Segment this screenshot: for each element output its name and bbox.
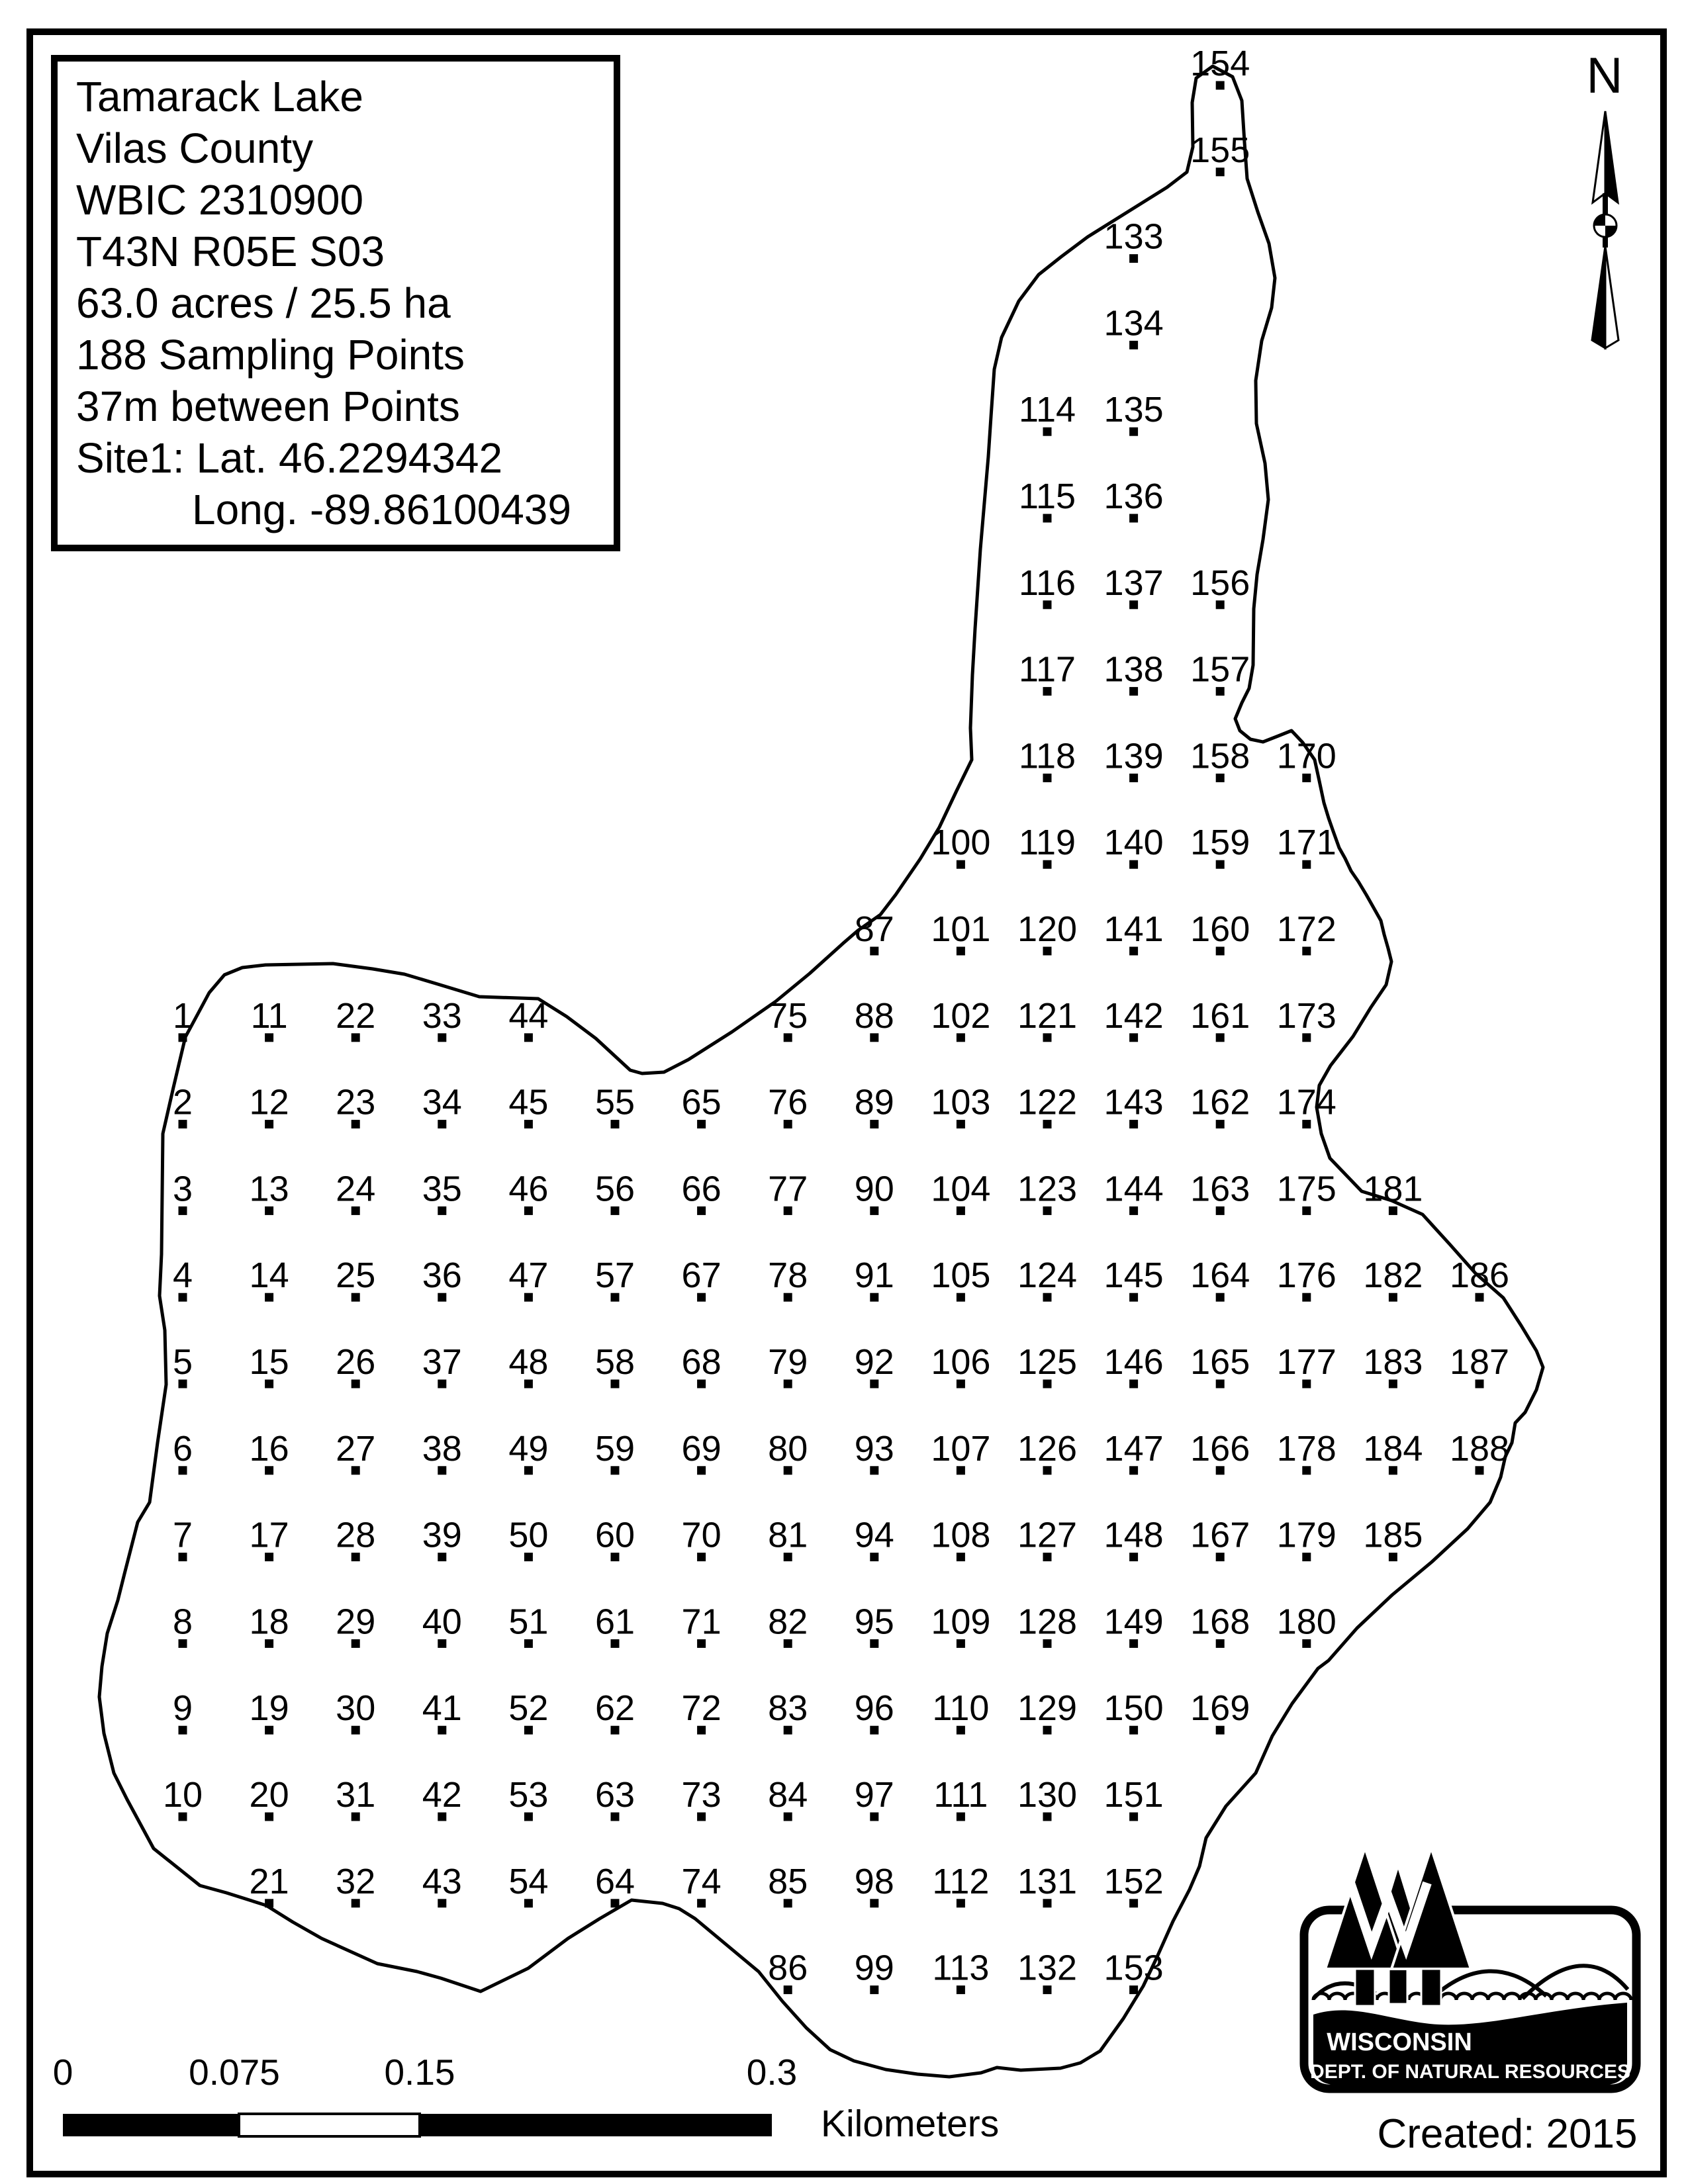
sampling-point-dot	[524, 1899, 533, 1907]
sampling-point-label: 168	[1190, 1602, 1250, 1641]
sampling-point-dot	[265, 1899, 273, 1907]
sampling-point-label: 108	[931, 1516, 990, 1555]
sampling-point-dot	[524, 1033, 533, 1042]
scale-unit-label: Kilometers	[821, 2103, 999, 2145]
sampling-point-label: 25	[336, 1255, 375, 1295]
sampling-point-label: 166	[1190, 1429, 1250, 1469]
sampling-point-label: 46	[508, 1169, 548, 1208]
sampling-point-dot	[957, 1726, 965, 1735]
sampling-point-label: 131	[1017, 1862, 1077, 1901]
sampling-point-label: 121	[1017, 996, 1077, 1036]
sampling-point-dot	[1129, 1639, 1138, 1648]
sampling-point-dot	[524, 1293, 533, 1302]
sampling-point-dot	[438, 1293, 446, 1302]
sampling-point-dot	[352, 1899, 360, 1907]
sampling-point-label: 90	[855, 1169, 894, 1208]
sampling-point-dot	[957, 1033, 965, 1042]
logo-dept-label: DEPT. OF NATURAL RESOURCES	[1310, 2061, 1630, 2083]
sampling-point-dot	[870, 947, 878, 956]
sampling-point-dot	[611, 1293, 620, 1302]
sampling-point-dot	[179, 1293, 187, 1302]
sampling-point-dot	[697, 1293, 706, 1302]
sampling-point-label: 77	[768, 1169, 808, 1208]
sampling-point-dot	[265, 1206, 273, 1215]
scale-tick-label: 0.075	[189, 2052, 280, 2093]
sampling-point-label: 139	[1104, 736, 1164, 776]
sampling-point-dot	[870, 1639, 878, 1648]
sampling-point-label: 40	[422, 1602, 462, 1641]
sampling-point-dot	[1302, 947, 1311, 956]
sampling-point-label: 155	[1190, 130, 1250, 170]
sampling-point-label: 111	[933, 1775, 988, 1815]
sampling-point-label: 169	[1190, 1688, 1250, 1728]
sampling-point-dot	[1216, 947, 1225, 956]
sampling-point-label: 75	[768, 996, 808, 1036]
sampling-point-label: 92	[855, 1342, 894, 1382]
sampling-point-label: 135	[1104, 390, 1164, 430]
sampling-point-label: 178	[1277, 1429, 1336, 1469]
sampling-point-dot	[1043, 1206, 1052, 1215]
sampling-point-label: 37	[422, 1342, 462, 1382]
title-line: Vilas County	[76, 122, 614, 174]
sampling-point-dot	[438, 1813, 446, 1821]
sampling-point-label: 61	[595, 1602, 635, 1641]
sampling-point-label: 176	[1277, 1255, 1336, 1295]
sampling-point-label: 12	[250, 1083, 289, 1122]
sampling-point-label: 171	[1277, 823, 1336, 862]
sampling-point-dot	[1043, 1985, 1052, 1994]
sampling-point-label: 157	[1190, 650, 1250, 690]
sampling-point-dot	[697, 1813, 706, 1821]
sampling-point-dot	[870, 1726, 878, 1735]
sampling-point-dot	[1302, 1466, 1311, 1475]
sampling-point-label: 1	[173, 996, 193, 1036]
sampling-point-label: 54	[508, 1862, 548, 1901]
sampling-point-label: 124	[1017, 1255, 1077, 1295]
dnr-logo: WISCONSIN DEPT. OF NATURAL RESOURCES	[1304, 1848, 1636, 2089]
sampling-point-dot	[265, 1553, 273, 1561]
title-box: Tamarack LakeVilas CountyWBIC 2310900T43…	[51, 55, 620, 551]
scale-bar-segment	[420, 2114, 772, 2136]
title-line: Tamarack Lake	[76, 71, 614, 122]
sampling-point-dot	[1216, 1033, 1225, 1042]
sampling-point-label: 156	[1190, 563, 1250, 603]
sampling-point-dot	[1216, 1206, 1225, 1215]
sampling-point-label: 93	[855, 1429, 894, 1469]
sampling-point-dot	[438, 1899, 446, 1907]
sampling-point-label: 181	[1363, 1169, 1423, 1208]
sampling-point-dot	[265, 1813, 273, 1821]
sampling-point-dot	[438, 1466, 446, 1475]
sampling-point-label: 76	[768, 1083, 808, 1122]
sampling-point-label: 149	[1104, 1602, 1164, 1641]
sampling-point-label: 20	[250, 1775, 289, 1815]
sampling-point-label: 114	[1019, 390, 1076, 430]
sampling-point-label: 24	[336, 1169, 375, 1208]
sampling-point-label: 59	[595, 1429, 635, 1469]
sampling-point-label: 74	[682, 1862, 722, 1901]
sampling-point-label: 137	[1104, 563, 1164, 603]
sampling-point-dot	[784, 1726, 792, 1735]
sampling-point-label: 99	[855, 1948, 894, 1988]
sampling-point-dot	[179, 1553, 187, 1561]
sampling-point-label: 43	[422, 1862, 462, 1901]
sampling-point-label: 3	[173, 1169, 193, 1208]
sampling-point-dot	[352, 1639, 360, 1648]
sampling-point-dot	[1043, 1033, 1052, 1042]
sampling-point-label: 33	[422, 996, 462, 1036]
sampling-point-dot	[179, 1380, 187, 1388]
sampling-point-dot	[1216, 1380, 1225, 1388]
sampling-point-dot	[1129, 1813, 1138, 1821]
sampling-point-dot	[957, 1120, 965, 1128]
sampling-point-label: 125	[1017, 1342, 1077, 1382]
sampling-point-dot	[611, 1466, 620, 1475]
sampling-point-dot	[1216, 1466, 1225, 1475]
map-page: 1234567891011121314151617181920212223242…	[0, 0, 1688, 2184]
sampling-point-dot	[265, 1466, 273, 1475]
sampling-point-label: 102	[931, 996, 990, 1036]
sampling-point-dot	[611, 1899, 620, 1907]
north-arrow-icon	[1592, 111, 1618, 348]
sampling-point-dot	[697, 1553, 706, 1561]
sampling-point-dot	[697, 1206, 706, 1215]
sampling-point-dot	[957, 1985, 965, 1994]
sampling-point-dot	[697, 1639, 706, 1648]
sampling-point-dot	[1129, 514, 1138, 523]
sampling-point-label: 163	[1190, 1169, 1250, 1208]
sampling-point-dot	[784, 1553, 792, 1561]
sampling-point-label: 48	[508, 1342, 548, 1382]
sampling-point-label: 129	[1017, 1688, 1077, 1728]
sampling-point-label: 96	[855, 1688, 894, 1728]
sampling-point-dot	[438, 1033, 446, 1042]
sampling-point-dot	[957, 1380, 965, 1388]
sampling-point-label: 150	[1104, 1688, 1164, 1728]
sampling-point-label: 113	[932, 1948, 989, 1988]
sampling-point-dot	[1129, 1206, 1138, 1215]
sampling-point-dot	[265, 1639, 273, 1648]
sampling-point-dot	[1216, 687, 1225, 696]
sampling-point-dot	[1129, 428, 1138, 436]
sampling-point-dot	[1043, 860, 1052, 869]
sampling-point-label: 31	[336, 1775, 375, 1815]
sampling-point-dot	[611, 1553, 620, 1561]
sampling-point-dot	[1129, 1726, 1138, 1735]
sampling-point-dot	[438, 1639, 446, 1648]
sampling-point-dot	[1216, 167, 1225, 176]
sampling-point-label: 106	[931, 1342, 990, 1382]
sampling-point-label: 170	[1277, 736, 1336, 776]
sampling-point-label: 160	[1190, 909, 1250, 949]
sampling-point-dot	[784, 1120, 792, 1128]
sampling-point-label: 180	[1277, 1602, 1336, 1641]
sampling-point-label: 151	[1104, 1775, 1164, 1815]
sampling-point-dot	[1389, 1466, 1397, 1475]
sampling-point-label: 28	[336, 1516, 375, 1555]
sampling-point-label: 145	[1104, 1255, 1164, 1295]
sampling-point-dot	[265, 1293, 273, 1302]
scale-tick-label: 0.15	[384, 2052, 455, 2093]
sampling-point-label: 154	[1190, 44, 1250, 83]
sampling-point-label: 88	[855, 996, 894, 1036]
sampling-point-dot	[1043, 1466, 1052, 1475]
sampling-point-dot	[1129, 1380, 1138, 1388]
sampling-point-label: 186	[1450, 1255, 1509, 1295]
sampling-point-dot	[957, 1293, 965, 1302]
sampling-point-dot	[352, 1206, 360, 1215]
sampling-point-label: 119	[1019, 823, 1076, 862]
sampling-point-label: 80	[768, 1429, 808, 1469]
title-line: Long. -89.86100439	[76, 484, 614, 535]
sampling-point-label: 39	[422, 1516, 462, 1555]
sampling-point-label: 162	[1190, 1083, 1250, 1122]
sampling-point-dot	[611, 1120, 620, 1128]
sampling-point-dot	[524, 1726, 533, 1735]
sampling-point-label: 158	[1190, 736, 1250, 776]
sampling-point-dot	[352, 1120, 360, 1128]
sampling-point-dot	[352, 1466, 360, 1475]
sampling-point-label: 47	[508, 1255, 548, 1295]
sampling-point-dot	[1216, 1726, 1225, 1735]
sampling-point-label: 182	[1363, 1255, 1423, 1295]
sampling-point-label: 4	[173, 1255, 193, 1295]
sampling-point-label: 83	[768, 1688, 808, 1728]
sampling-point-dot	[524, 1466, 533, 1475]
sampling-point-dot	[1389, 1206, 1397, 1215]
sampling-point-label: 65	[682, 1083, 722, 1122]
sampling-point-dot	[784, 1380, 792, 1388]
title-line: T43N R05E S03	[76, 226, 614, 277]
sampling-point-label: 67	[682, 1255, 722, 1295]
sampling-point-label: 49	[508, 1429, 548, 1469]
sampling-point-dot	[1216, 1639, 1225, 1648]
sampling-point-dot	[870, 1033, 878, 1042]
sampling-point-dot	[265, 1380, 273, 1388]
sampling-point-label: 56	[595, 1169, 635, 1208]
title-line: WBIC 2310900	[76, 174, 614, 226]
sampling-point-label: 109	[931, 1602, 990, 1641]
sampling-point-label: 62	[595, 1688, 635, 1728]
created-text: Created: 2015	[1378, 2111, 1638, 2157]
sampling-point-dot	[352, 1380, 360, 1388]
sampling-point-label: 41	[422, 1688, 462, 1728]
sampling-point-dot	[697, 1120, 706, 1128]
sampling-point-label: 70	[682, 1516, 722, 1555]
sampling-point-label: 52	[508, 1688, 548, 1728]
sampling-point-dot	[784, 1466, 792, 1475]
sampling-point-label: 115	[1019, 477, 1076, 516]
sampling-point-dot	[1216, 600, 1225, 609]
sampling-point-label: 64	[595, 1862, 635, 1901]
sampling-point-dot	[957, 947, 965, 956]
sampling-point-label: 95	[855, 1602, 894, 1641]
sampling-point-dot	[611, 1726, 620, 1735]
sampling-point-label: 143	[1104, 1083, 1164, 1122]
sampling-point-dot	[870, 1899, 878, 1907]
sampling-point-dot	[1129, 1293, 1138, 1302]
sampling-point-label: 148	[1104, 1516, 1164, 1555]
sampling-point-label: 179	[1277, 1516, 1336, 1555]
sampling-point-label: 105	[931, 1255, 990, 1295]
sampling-point-dot	[1043, 1899, 1052, 1907]
sampling-point-dot	[870, 1293, 878, 1302]
title-line: Site1: Lat. 46.2294342	[76, 432, 614, 484]
sampling-point-dot	[1043, 1639, 1052, 1648]
sampling-point-dot	[1043, 1813, 1052, 1821]
sampling-point-label: 89	[855, 1083, 894, 1122]
sampling-point-label: 172	[1277, 909, 1336, 949]
scale-tick-label: 0.3	[747, 2052, 797, 2093]
sampling-point-dot	[1302, 1120, 1311, 1128]
sampling-point-dot	[611, 1813, 620, 1821]
sampling-point-label: 165	[1190, 1342, 1250, 1382]
sampling-point-label: 21	[250, 1862, 289, 1901]
sampling-point-label: 127	[1017, 1516, 1077, 1555]
sampling-point-dot	[1043, 1293, 1052, 1302]
sampling-point-label: 22	[336, 996, 375, 1036]
sampling-point-label: 8	[173, 1602, 193, 1641]
sampling-point-dot	[1129, 1033, 1138, 1042]
sampling-point-label: 87	[855, 909, 894, 949]
sampling-point-label: 45	[508, 1083, 548, 1122]
sampling-point-label: 103	[931, 1083, 990, 1122]
sampling-point-label: 152	[1104, 1862, 1164, 1901]
sampling-point-label: 15	[250, 1342, 289, 1382]
sampling-point-dot	[1043, 1380, 1052, 1388]
sampling-point-label: 30	[336, 1688, 375, 1728]
sampling-point-dot	[784, 1813, 792, 1821]
sampling-point-label: 128	[1017, 1602, 1077, 1641]
sampling-point-label: 16	[250, 1429, 289, 1469]
sampling-point-dot	[957, 860, 965, 869]
sampling-point-label: 18	[250, 1602, 289, 1641]
sampling-point-label: 173	[1277, 996, 1336, 1036]
sampling-point-dot	[352, 1293, 360, 1302]
sampling-point-label: 141	[1104, 909, 1164, 949]
sampling-point-label: 84	[768, 1775, 808, 1815]
sampling-point-dot	[1043, 687, 1052, 696]
sampling-point-dot	[870, 1985, 878, 1994]
sampling-point-dot	[352, 1813, 360, 1821]
sampling-point-dot	[265, 1726, 273, 1735]
sampling-point-label: 147	[1104, 1429, 1164, 1469]
sampling-point-dot	[1389, 1553, 1397, 1561]
sampling-point-dot	[179, 1466, 187, 1475]
sampling-point-label: 164	[1190, 1255, 1250, 1295]
sampling-point-label: 177	[1277, 1342, 1336, 1382]
sampling-point-label: 118	[1019, 736, 1076, 776]
sampling-point-dot	[784, 1206, 792, 1215]
sampling-point-dot	[1043, 1726, 1052, 1735]
sampling-point-dot	[1129, 600, 1138, 609]
sampling-point-label: 85	[768, 1862, 808, 1901]
sampling-point-label: 69	[682, 1429, 722, 1469]
sampling-point-label: 32	[336, 1862, 375, 1901]
sampling-point-label: 133	[1104, 217, 1164, 257]
sampling-point-dot	[1043, 600, 1052, 609]
sampling-point-label: 29	[336, 1602, 375, 1641]
sampling-point-dot	[179, 1120, 187, 1128]
sampling-point-label: 122	[1017, 1083, 1077, 1122]
sampling-point-dot	[697, 1380, 706, 1388]
sampling-point-label: 72	[682, 1688, 722, 1728]
sampling-point-dot	[1302, 1639, 1311, 1648]
sampling-point-dot	[1216, 1293, 1225, 1302]
sampling-point-label: 44	[508, 996, 548, 1036]
sampling-point-dot	[697, 1899, 706, 1907]
sampling-point-dot	[352, 1553, 360, 1561]
sampling-point-label: 184	[1363, 1429, 1423, 1469]
sampling-point-dot	[265, 1033, 273, 1042]
sampling-point-label: 107	[931, 1429, 990, 1469]
sampling-point-label: 17	[250, 1516, 289, 1555]
sampling-point-dot	[1129, 774, 1138, 782]
sampling-point-dot	[524, 1206, 533, 1215]
sampling-point-dot	[179, 1033, 187, 1042]
sampling-point-label: 104	[931, 1169, 990, 1208]
sampling-point-dot	[1302, 1033, 1311, 1042]
sampling-point-dot	[1216, 1120, 1225, 1128]
sampling-point-label: 26	[336, 1342, 375, 1382]
scale-tick-label: 0	[53, 2052, 73, 2093]
sampling-point-label: 132	[1017, 1948, 1077, 1988]
sampling-point-dot	[438, 1726, 446, 1735]
sampling-point-label: 34	[422, 1083, 462, 1122]
scale-bar-ticks: 00.0750.150.3	[53, 2052, 798, 2093]
sampling-point-dot	[179, 1726, 187, 1735]
sampling-point-label: 11	[251, 996, 288, 1036]
sampling-point-dot	[1129, 860, 1138, 869]
sampling-point-label: 183	[1363, 1342, 1423, 1382]
sampling-point-dot	[179, 1206, 187, 1215]
sampling-point-label: 112	[932, 1862, 989, 1901]
sampling-point-dot	[1043, 428, 1052, 436]
sampling-point-label: 42	[422, 1775, 462, 1815]
sampling-point-dot	[179, 1813, 187, 1821]
sampling-point-dot	[784, 1639, 792, 1648]
title-line: 37m between Points	[76, 381, 614, 432]
sampling-point-label: 82	[768, 1602, 808, 1641]
sampling-point-dot	[957, 1813, 965, 1821]
sampling-point-dot	[697, 1726, 706, 1735]
sampling-point-dot	[1129, 1120, 1138, 1128]
sampling-point-label: 23	[336, 1083, 375, 1122]
sampling-point-dot	[1216, 774, 1225, 782]
sampling-point-label: 19	[250, 1688, 289, 1728]
sampling-point-label: 9	[173, 1688, 193, 1728]
sampling-point-dot	[1302, 774, 1311, 782]
sampling-point-dot	[524, 1813, 533, 1821]
sampling-point-label: 35	[422, 1169, 462, 1208]
sampling-point-dot	[1476, 1466, 1484, 1475]
sampling-point-label: 116	[1019, 563, 1076, 603]
sampling-point-dot	[870, 1120, 878, 1128]
scale-bar: 00.0750.150.3 Kilometers	[53, 2052, 1000, 2145]
sampling-point-label: 6	[173, 1429, 193, 1469]
sampling-point-label: 27	[336, 1429, 375, 1469]
sampling-point-dot	[1216, 81, 1225, 90]
sampling-point-label: 117	[1019, 650, 1076, 690]
sampling-point-dot	[1302, 860, 1311, 869]
sampling-point-label: 134	[1104, 303, 1164, 343]
sampling-point-label: 101	[931, 909, 990, 949]
sampling-point-dot	[524, 1380, 533, 1388]
sampling-point-label: 120	[1017, 909, 1077, 949]
sampling-point-dot	[438, 1206, 446, 1215]
sampling-point-label: 2	[173, 1083, 193, 1122]
sampling-point-dot	[1129, 341, 1138, 349]
